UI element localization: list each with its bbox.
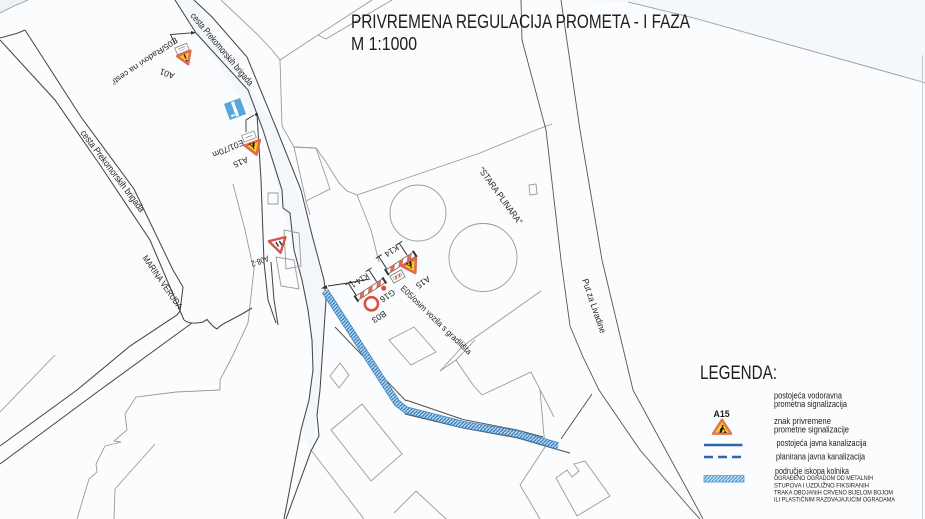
svg-text:TRAKA OBOJANIH CRVENO BIJELOM: TRAKA OBOJANIH CRVENO BIJELOM BOJOM	[774, 490, 893, 497]
svg-text:ILI PLASTIČNIM RAZDVAJAJUĆIM O: ILI PLASTIČNIM RAZDVAJAJUĆIM OGRADAMA	[774, 495, 896, 504]
svg-text:OGRAĐENO OGRADOM OD METALNIH: OGRAĐENO OGRADOM OD METALNIH	[774, 475, 873, 482]
svg-text:A15: A15	[714, 409, 730, 419]
svg-text:postojeća javna kanalizacija: postojeća javna kanalizacija	[777, 438, 867, 448]
svg-text:prometne signalizacije: prometne signalizacije	[774, 425, 849, 435]
svg-text:PRIVREMENA REGULACIJA PROMETA: PRIVREMENA REGULACIJA PROMETA - I FAZA	[351, 11, 690, 33]
svg-text:prometna signalizacija: prometna signalizacija	[774, 399, 847, 409]
svg-text:M 1:1000: M 1:1000	[351, 33, 417, 54]
svg-text:LEGENDA:: LEGENDA:	[700, 363, 777, 384]
svg-text:STUPOVA I UZDUŽNO FIKSIRANIH: STUPOVA I UZDUŽNO FIKSIRANIH	[774, 480, 869, 489]
svg-text:planirana javna kanalizacija: planirana javna kanalizacija	[776, 452, 865, 462]
